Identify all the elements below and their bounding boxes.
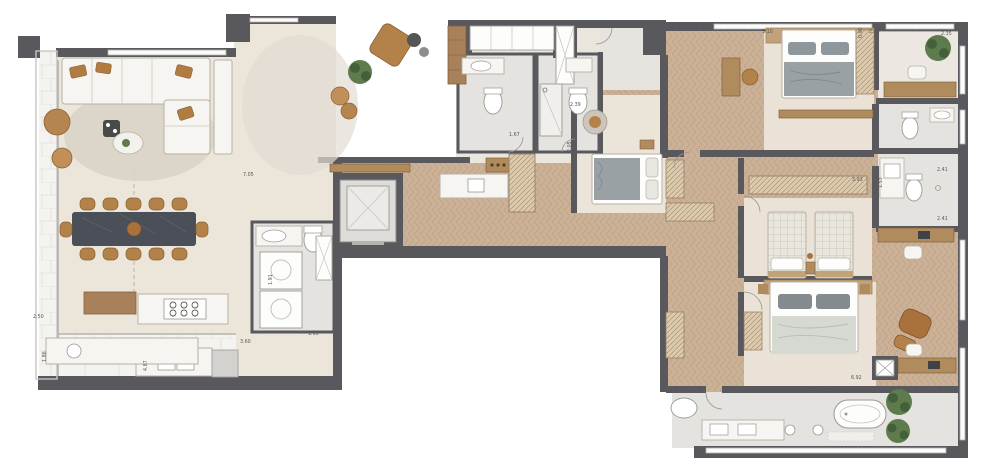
vanity-basin-1 [710,424,728,435]
elevator [333,173,403,249]
wall-corner-topleft [18,36,40,58]
dim-office-width: 2.35 [941,31,952,37]
shower-fixture-1 [785,425,795,435]
living-room [44,58,232,260]
bathtub [834,400,886,428]
elevator-doors [352,242,384,245]
master-blanket [772,316,856,354]
kitchen-wood-cabinet [84,292,136,314]
bath-mat [828,432,874,441]
dim-bedroom-width: 2.35 [869,29,880,35]
dim-hall-depth: 2.05 [567,141,573,152]
window-master-bath [706,448,946,453]
nook-desk [878,228,954,242]
stool-2 [341,103,357,119]
washer [260,252,302,289]
freestanding-basin [671,398,697,418]
dim-laundry-depth: 1.91 [268,274,274,285]
coffee-table-dark [103,120,120,137]
floor-plan-svg: 7.05 2.50 1.86 4.87 3.60 1.05 1.91 1.67 … [0,0,1000,468]
dim-master-bath-a: 4.93 [803,387,814,393]
window-right-4 [960,348,965,440]
twin-lamp [807,253,813,259]
window-lounge [250,18,298,22]
hall-closet-3 [666,312,684,358]
master-pillow-1 [778,294,812,309]
twin-pillow-1 [771,258,803,270]
office-chair [908,66,926,79]
bath-a-toilet [902,117,918,139]
dim-master-bath-b: 2.44 [828,388,839,394]
window-right-2 [960,110,965,144]
bedroom1-pillow-2 [646,180,658,199]
office-desk [884,82,956,97]
bath-plant-1 [886,389,912,415]
dim-kitchen-length: 4.87 [143,360,149,371]
twin-headboard-2 [815,271,853,277]
lounge-armchair [368,22,415,69]
bedroom2-closet [856,30,874,94]
master-desk [898,358,956,373]
twin-pillow-2 [818,258,850,270]
shower-fixture-2 [813,425,823,435]
pouf-large [44,109,70,135]
floor-plan-canvas: 7.05 2.50 1.86 4.87 3.60 1.05 1.91 1.67 … [0,0,1000,468]
window-right-3 [960,240,965,320]
dim-closet-depth: 0.90 [858,27,864,38]
bedroom1-closet [509,154,535,212]
hall-closet-2 [666,203,714,221]
bedroom2-bench [779,110,873,118]
office-plant [925,35,951,61]
console-sideboard [330,164,410,172]
dim-bedroom2-width: 3.10 [762,29,773,35]
dim-kitchen-width: 3.60 [240,339,251,345]
twin-closet [749,176,867,194]
dim-master-suite: 6.92 [851,375,862,381]
vanity-basin-2 [738,424,756,435]
dim-kitchen-terrace: 2.50 [33,314,44,320]
bedroom2-desk [722,58,740,96]
dim-bath-right-a: 2.41 [937,167,948,173]
side-table-small [419,47,429,57]
dryer [260,291,302,328]
twin-nightstand [806,262,815,274]
bedroom1-pillow-1 [646,158,658,177]
bedroom2-pillow-2 [821,42,849,55]
dim-bath-right-b: 2.41 [937,216,948,222]
dim-terrace-depth: 1.86 [42,351,48,362]
support-counter-sink [468,179,484,192]
dim-hall-width: 2.39 [570,102,581,108]
dim-shower-room: 1.67 [509,132,520,138]
window-right-1 [960,46,965,94]
master-nightstand-2 [860,284,870,294]
refrigerator [212,350,238,377]
window-living [108,50,226,55]
bedroom2-chair [742,69,758,85]
bath-b-toilet [906,179,922,201]
dim-laundry-width: 1.05 [308,331,319,337]
upper-lounge [242,22,466,175]
dim-living-width: 7.05 [243,172,254,178]
twin-headboard-1 [768,271,806,277]
table-plant [122,139,130,147]
left-balcony-floor [39,52,57,378]
nook-chair [904,246,922,259]
master-laptop [928,361,940,369]
bedroom2-pillow-1 [788,42,816,55]
pouf-small [52,148,72,168]
window-office [886,24,954,29]
dining-centerpiece [127,222,141,236]
stool-1 [331,87,349,105]
master-nightstand-1 [758,284,768,294]
dim-bath-top: 3.93 [852,177,863,183]
hall-closet-1 [666,160,684,198]
nook-laptop [918,231,930,239]
master-desk-chair [906,344,922,356]
bedroom1-nightstand [640,140,654,149]
side-table-dark [407,33,421,47]
shower-room-sink [566,58,592,72]
master-pillow-2 [816,294,850,309]
sofa-console [214,60,232,154]
master-closet [744,312,762,350]
dim-bath-top-depth: 1.53 [878,177,884,188]
bedroom2-blanket [784,62,854,96]
terrace-sink [67,344,81,358]
